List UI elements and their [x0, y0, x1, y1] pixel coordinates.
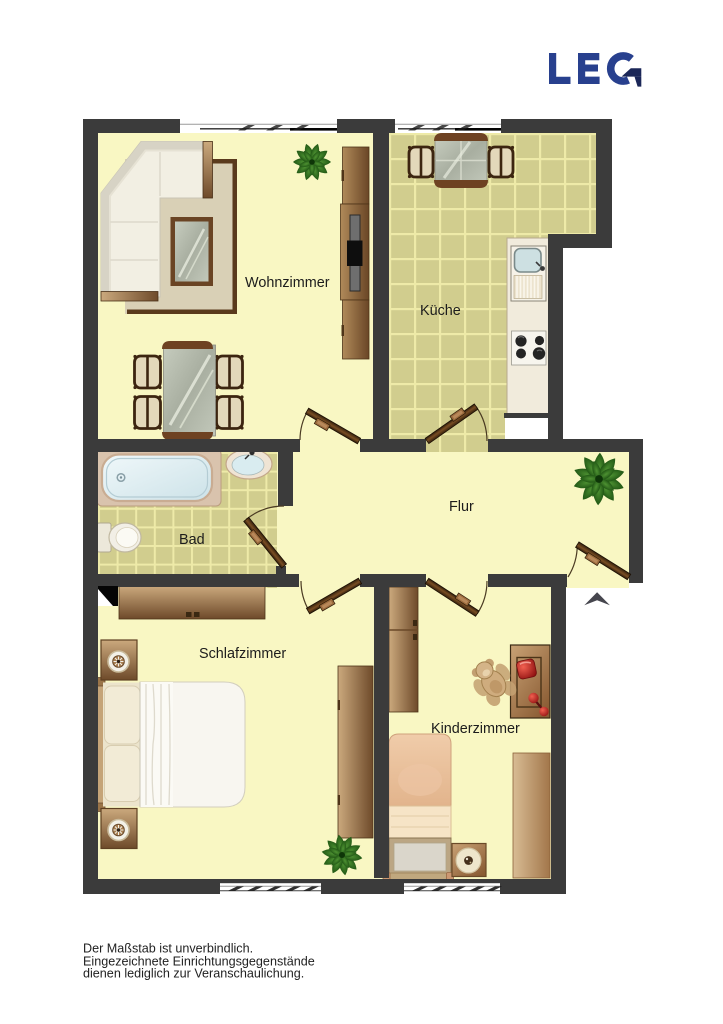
svg-text:Bad: Bad: [179, 532, 205, 548]
svg-text:Schlafzimmer: Schlafzimmer: [199, 646, 286, 662]
svg-text:Kinderzimmer: Kinderzimmer: [431, 721, 520, 737]
svg-text:Küche: Küche: [420, 303, 461, 319]
svg-text:Flur: Flur: [449, 499, 474, 515]
svg-text:Wohnzimmer: Wohnzimmer: [245, 275, 330, 291]
svg-text:dienen lediglich zur Veranscha: dienen lediglich zur Veranschaulichung.: [83, 967, 304, 981]
svg-text:Der Maßstab ist unverbindlich.: Der Maßstab ist unverbindlich.: [83, 942, 253, 956]
